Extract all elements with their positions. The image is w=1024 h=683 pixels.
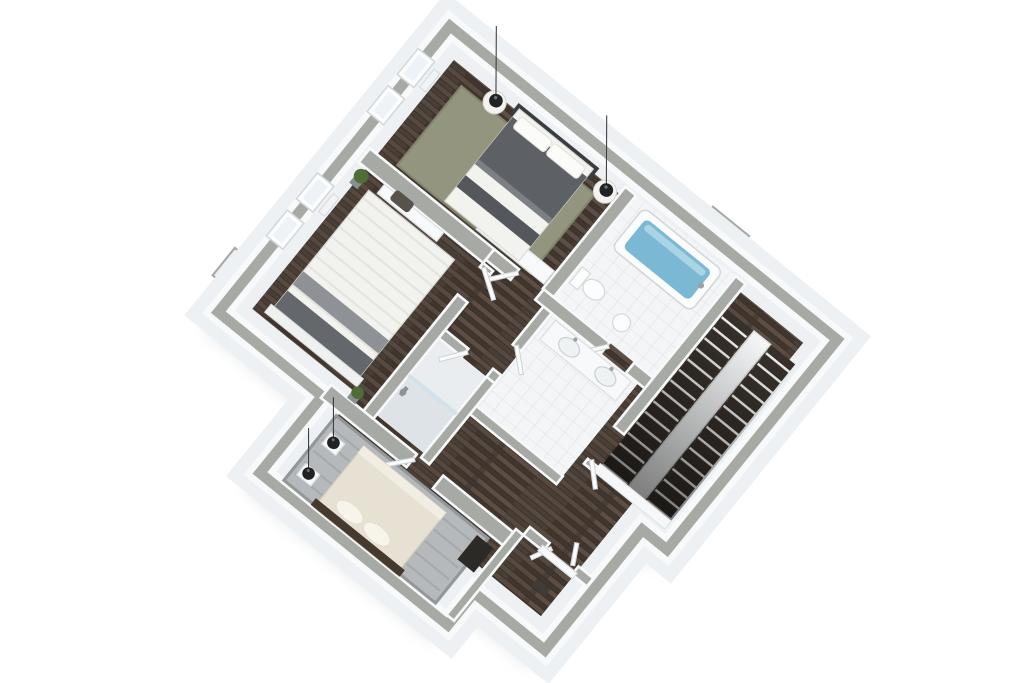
- floorplan-svg: [0, 0, 1024, 683]
- floorplan-render: [0, 0, 1024, 683]
- building: [135, 0, 856, 683]
